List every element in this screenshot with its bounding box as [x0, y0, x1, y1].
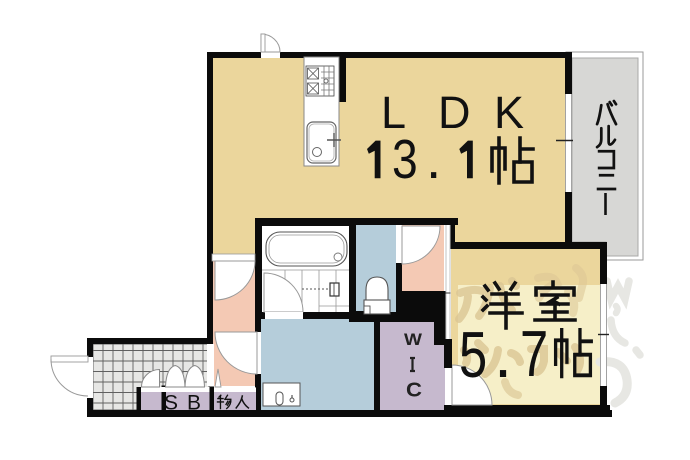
svg-text:7: 7	[520, 318, 548, 390]
svg-text:S: S	[164, 392, 178, 415]
svg-text:5: 5	[459, 319, 487, 391]
svg-text:.: .	[426, 128, 441, 190]
svg-text:.: .	[494, 318, 512, 391]
svg-text:3: 3	[392, 128, 418, 190]
svg-text:W: W	[404, 330, 422, 349]
svg-text:C: C	[406, 378, 422, 401]
svg-text:D: D	[438, 87, 471, 138]
svg-text:K: K	[494, 87, 524, 138]
svg-text:B: B	[187, 392, 201, 415]
